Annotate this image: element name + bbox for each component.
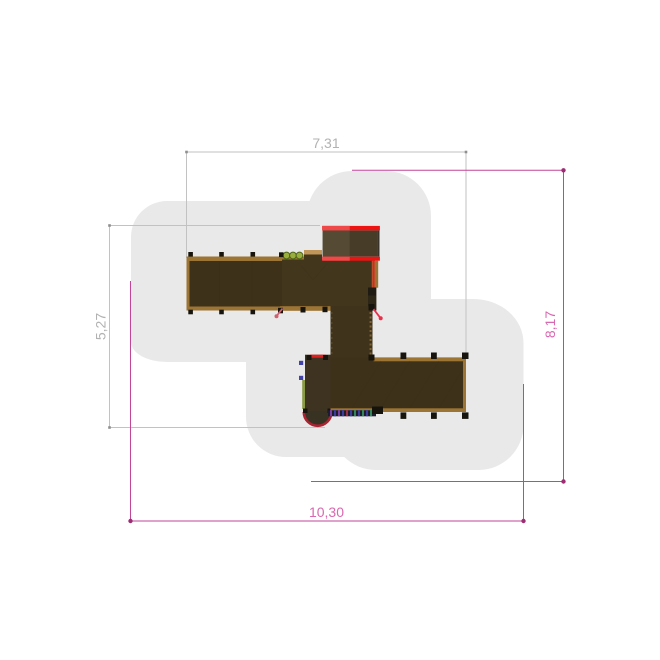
svg-text:8,17: 8,17 — [542, 311, 558, 338]
svg-text:7,31: 7,31 — [312, 135, 339, 151]
svg-text:5,27: 5,27 — [92, 313, 108, 340]
svg-text:10,30: 10,30 — [309, 504, 344, 520]
